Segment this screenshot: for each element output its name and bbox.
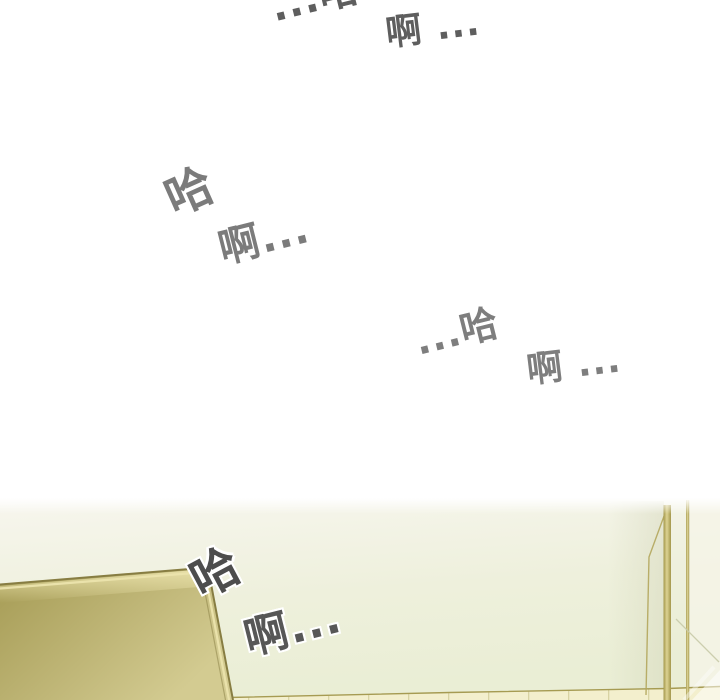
gold-frame-thin-edge [686,500,689,700]
sfx-ha-mid-left: 哈 [159,161,222,223]
gold-frame-edge [664,505,672,700]
scene-top-fade [0,498,720,514]
left-partition-panel [0,568,233,700]
bathroom-scene [0,498,720,700]
wall-seam-shade [608,501,664,700]
sfx-ah-top: 啊 ... [384,5,482,52]
comic-page: ...哈 啊 ... 哈 啊... ...哈 啊 ... 哈 啊... [0,0,720,700]
sfx-ha-mid-right: ...哈 [411,303,503,361]
bathroom-scene-art [0,498,720,700]
sfx-ha-top: ...哈 [267,0,364,28]
sfx-ah-mid-right: 啊 ... [525,342,623,389]
sfx-ah-mid-left: 啊... [215,208,314,270]
wall-right-strip [690,498,720,700]
